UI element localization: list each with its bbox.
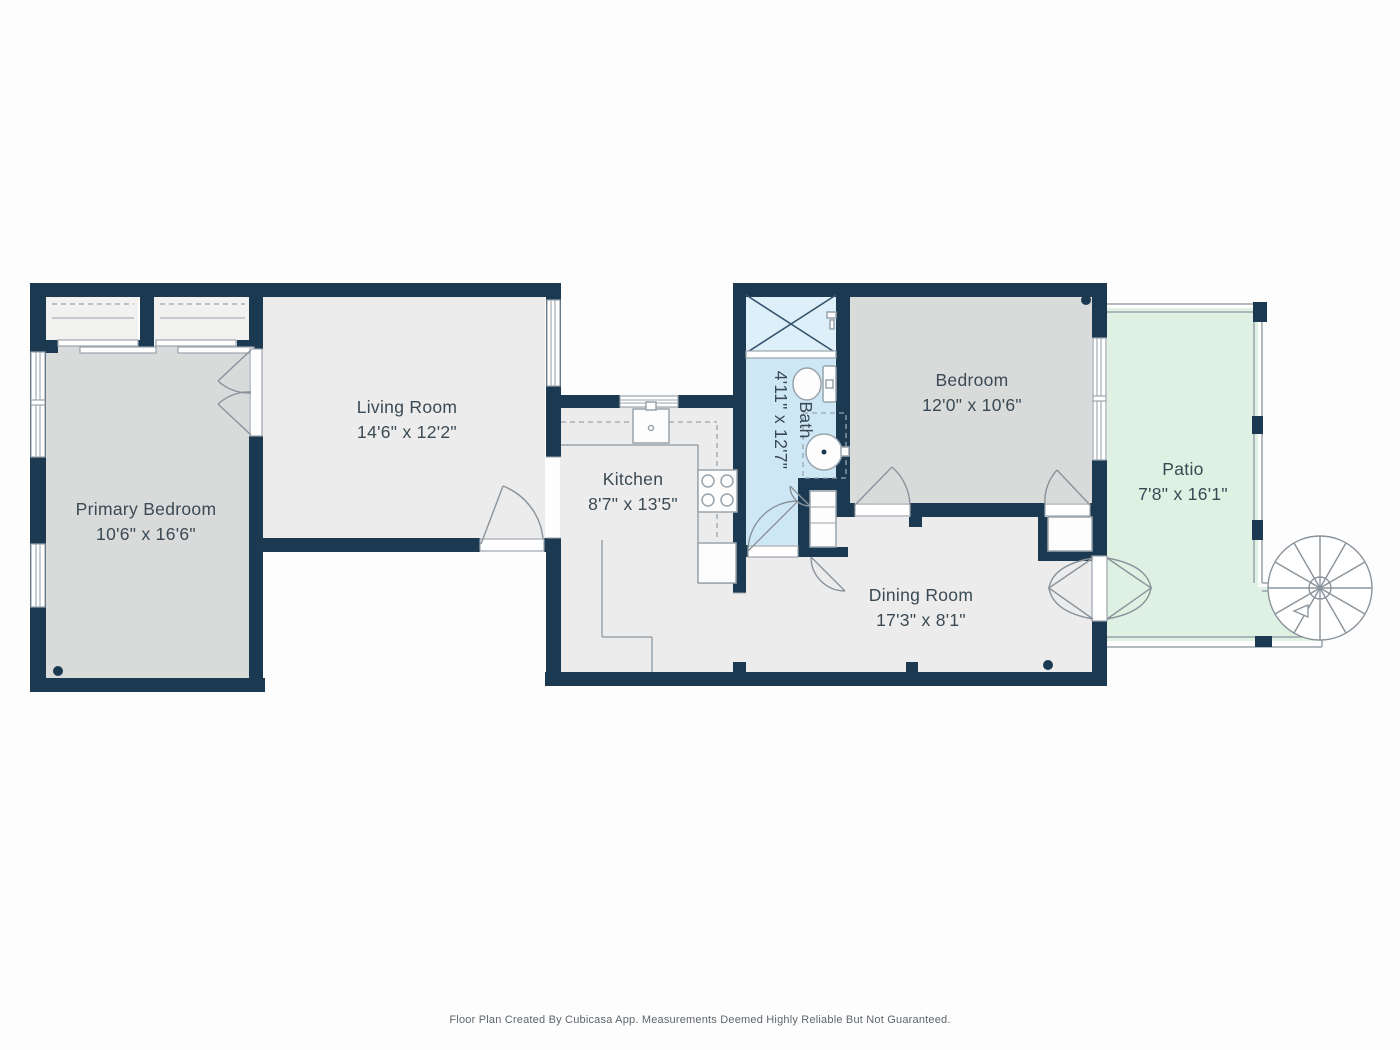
room-dims: 8'7" x 13'5" [588, 492, 678, 517]
room-label-dining-room: Dining Room 17'3" x 8'1" [869, 583, 973, 633]
floorplan-canvas: Primary Bedroom 10'6" x 16'6" Living Roo… [0, 0, 1400, 1050]
window-left-2 [31, 544, 45, 607]
shower-head-icon [830, 320, 834, 329]
dining-floor-strip [836, 517, 848, 672]
room-dims: 7'8" x 16'1" [1138, 482, 1228, 507]
room-dims: 17'3" x 8'1" [869, 608, 973, 633]
rail-post [1252, 520, 1263, 540]
hall-arch-floor [733, 593, 746, 672]
door-slab-patio [1092, 556, 1107, 621]
toilet-button [826, 380, 833, 388]
door-slab-bedroom-1 [855, 504, 910, 516]
sliding-door [58, 340, 138, 346]
bedroom-closet [1048, 517, 1092, 551]
room-label-bath: Bath 4'11" x 12'7" [768, 371, 818, 470]
room-label-patio: Patio 7'8" x 16'1" [1138, 457, 1228, 507]
room-name: Kitchen [588, 467, 678, 492]
sink-faucet-icon [646, 402, 656, 410]
kitchen-cabinet [698, 543, 736, 583]
hall-floor [746, 557, 836, 672]
room-dims: 10'6" x 16'6" [76, 522, 217, 547]
window-bedroom-right [1093, 338, 1106, 460]
room-name: Bedroom [922, 368, 1022, 393]
spiral-staircase [1268, 536, 1372, 640]
room-label-primary-bedroom: Primary Bedroom 10'6" x 16'6" [76, 497, 217, 547]
room-name: Living Room [357, 395, 458, 420]
door-slab-bedroom-2 [1045, 504, 1090, 516]
room-dims: 14'6" x 12'2" [357, 420, 458, 445]
footer-disclaimer: Floor Plan Created By Cubicasa App. Meas… [449, 1014, 950, 1026]
room-label-kitchen: Kitchen 8'7" x 13'5" [588, 467, 678, 517]
room-label-bedroom: Bedroom 12'0" x 10'6" [922, 368, 1022, 418]
rail-post [1253, 302, 1267, 322]
kitchen-floor [560, 407, 733, 672]
room-name: Patio [1138, 457, 1228, 482]
room-dims: 12'0" x 10'6" [922, 393, 1022, 418]
bath-faucet-icon [841, 447, 849, 456]
door-slab-primary [250, 349, 262, 436]
room-dims: 4'11" x 12'7" [768, 371, 793, 470]
room-name: Dining Room [869, 583, 973, 608]
door-slab-bath [748, 546, 798, 557]
shower-head-icon [827, 312, 836, 318]
door-slab-living [480, 539, 544, 551]
shower-door [746, 351, 836, 358]
room-name: Primary Bedroom [76, 497, 217, 522]
linen-closet [810, 491, 836, 547]
sliding-door [156, 340, 236, 346]
rail-post [1255, 636, 1272, 647]
window-left-1 [31, 352, 45, 457]
room-name: Bath [793, 371, 818, 470]
sliding-door [80, 347, 156, 353]
room-label-living-room: Living Room 14'6" x 12'2" [357, 395, 458, 445]
sliding-door [178, 347, 254, 353]
rail-post [1252, 416, 1263, 434]
window-living-right [547, 300, 560, 386]
